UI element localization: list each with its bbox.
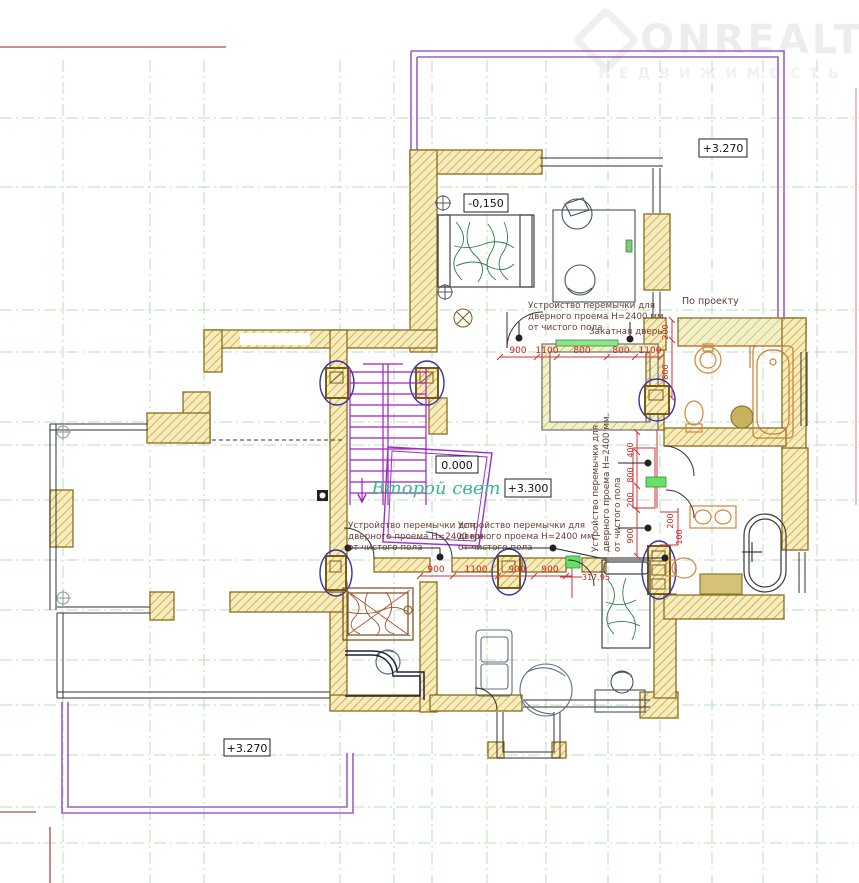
lintel-note-vertical: Устройство перемычки для <box>591 425 601 552</box>
bed-top-bedroom <box>438 215 534 287</box>
elevation-label: +3.270 <box>703 142 744 155</box>
dimension-value: 900 <box>541 565 558 575</box>
dimension-value: 900 <box>427 565 444 575</box>
dimension-value: 800 <box>612 346 629 356</box>
dimension-value: 800 <box>661 364 670 379</box>
floor-plan-canvas: ONREALT НЕДВИЖИМОСТЬ <box>0 0 859 883</box>
dimension-value: 900 <box>509 346 526 356</box>
by-project-label: По проекту <box>682 296 739 307</box>
lintel-note-vertical: дверного проема Н=2400 мм. <box>602 414 612 552</box>
lintel-note-right: Устройство перемычки для <box>458 521 585 531</box>
lintel-note-right: дверного проема Н=2400 мм. <box>458 532 596 542</box>
dimension-value: 100 <box>675 529 684 544</box>
roof-contour-bottom <box>62 702 353 813</box>
dimension-value: 800 <box>573 346 590 356</box>
column <box>320 550 352 596</box>
rolling-door-label: Закатная дверь <box>589 327 663 337</box>
dimension-value: 317.95 <box>582 573 610 582</box>
column <box>320 361 354 405</box>
elevation-label: +3.300 <box>508 482 549 495</box>
column <box>642 541 676 599</box>
dimension-value: 1100 <box>465 565 488 575</box>
bathroom2-fixtures <box>666 506 786 594</box>
bathroom1-fixtures <box>685 344 793 438</box>
dimension-value: 1100 <box>639 346 662 356</box>
lintel-note-top: Устройство перемычки для <box>528 301 655 311</box>
dimension-value: 800 <box>626 467 635 482</box>
lintel-note-left: Устройство перемычки для <box>348 521 475 531</box>
step-outline <box>345 651 424 700</box>
desk-top-bedroom <box>553 198 635 302</box>
floor-plan-drawing: 900 1100 800 800 1100 900 1100 900 900 3… <box>0 0 859 883</box>
dimension-value: 1100 <box>536 346 559 356</box>
cross-circle-mark <box>454 309 472 327</box>
lintel-note-right: от чистого пола <box>458 543 533 553</box>
column <box>639 379 675 421</box>
second-light-label: Второй свет <box>370 478 500 499</box>
lintel-note-left: от чистого пола <box>348 543 423 553</box>
elevation-label: 0.000 <box>441 459 473 472</box>
dimension-value: 900 <box>626 528 635 543</box>
camera-mark <box>317 490 328 501</box>
lintel-note-vertical: от чистого пола <box>613 477 623 552</box>
bed-bottom-left <box>343 588 413 640</box>
walls-layer <box>50 150 808 758</box>
vent-mark <box>437 284 453 300</box>
dimension-value: 200 <box>666 513 675 528</box>
target-mark <box>55 590 71 606</box>
lintel-note-top: дверного проема Н=2400 мм. <box>528 312 666 322</box>
elevation-label: +3.270 <box>227 742 268 755</box>
dimension-value: 900 <box>508 565 525 575</box>
desk-living <box>595 671 645 712</box>
dimension-value: 200 <box>626 492 635 507</box>
elevation-label: -0,150 <box>468 197 503 210</box>
sofa <box>476 630 512 696</box>
dimension-value: 400 <box>626 442 635 457</box>
target-mark <box>55 424 71 440</box>
